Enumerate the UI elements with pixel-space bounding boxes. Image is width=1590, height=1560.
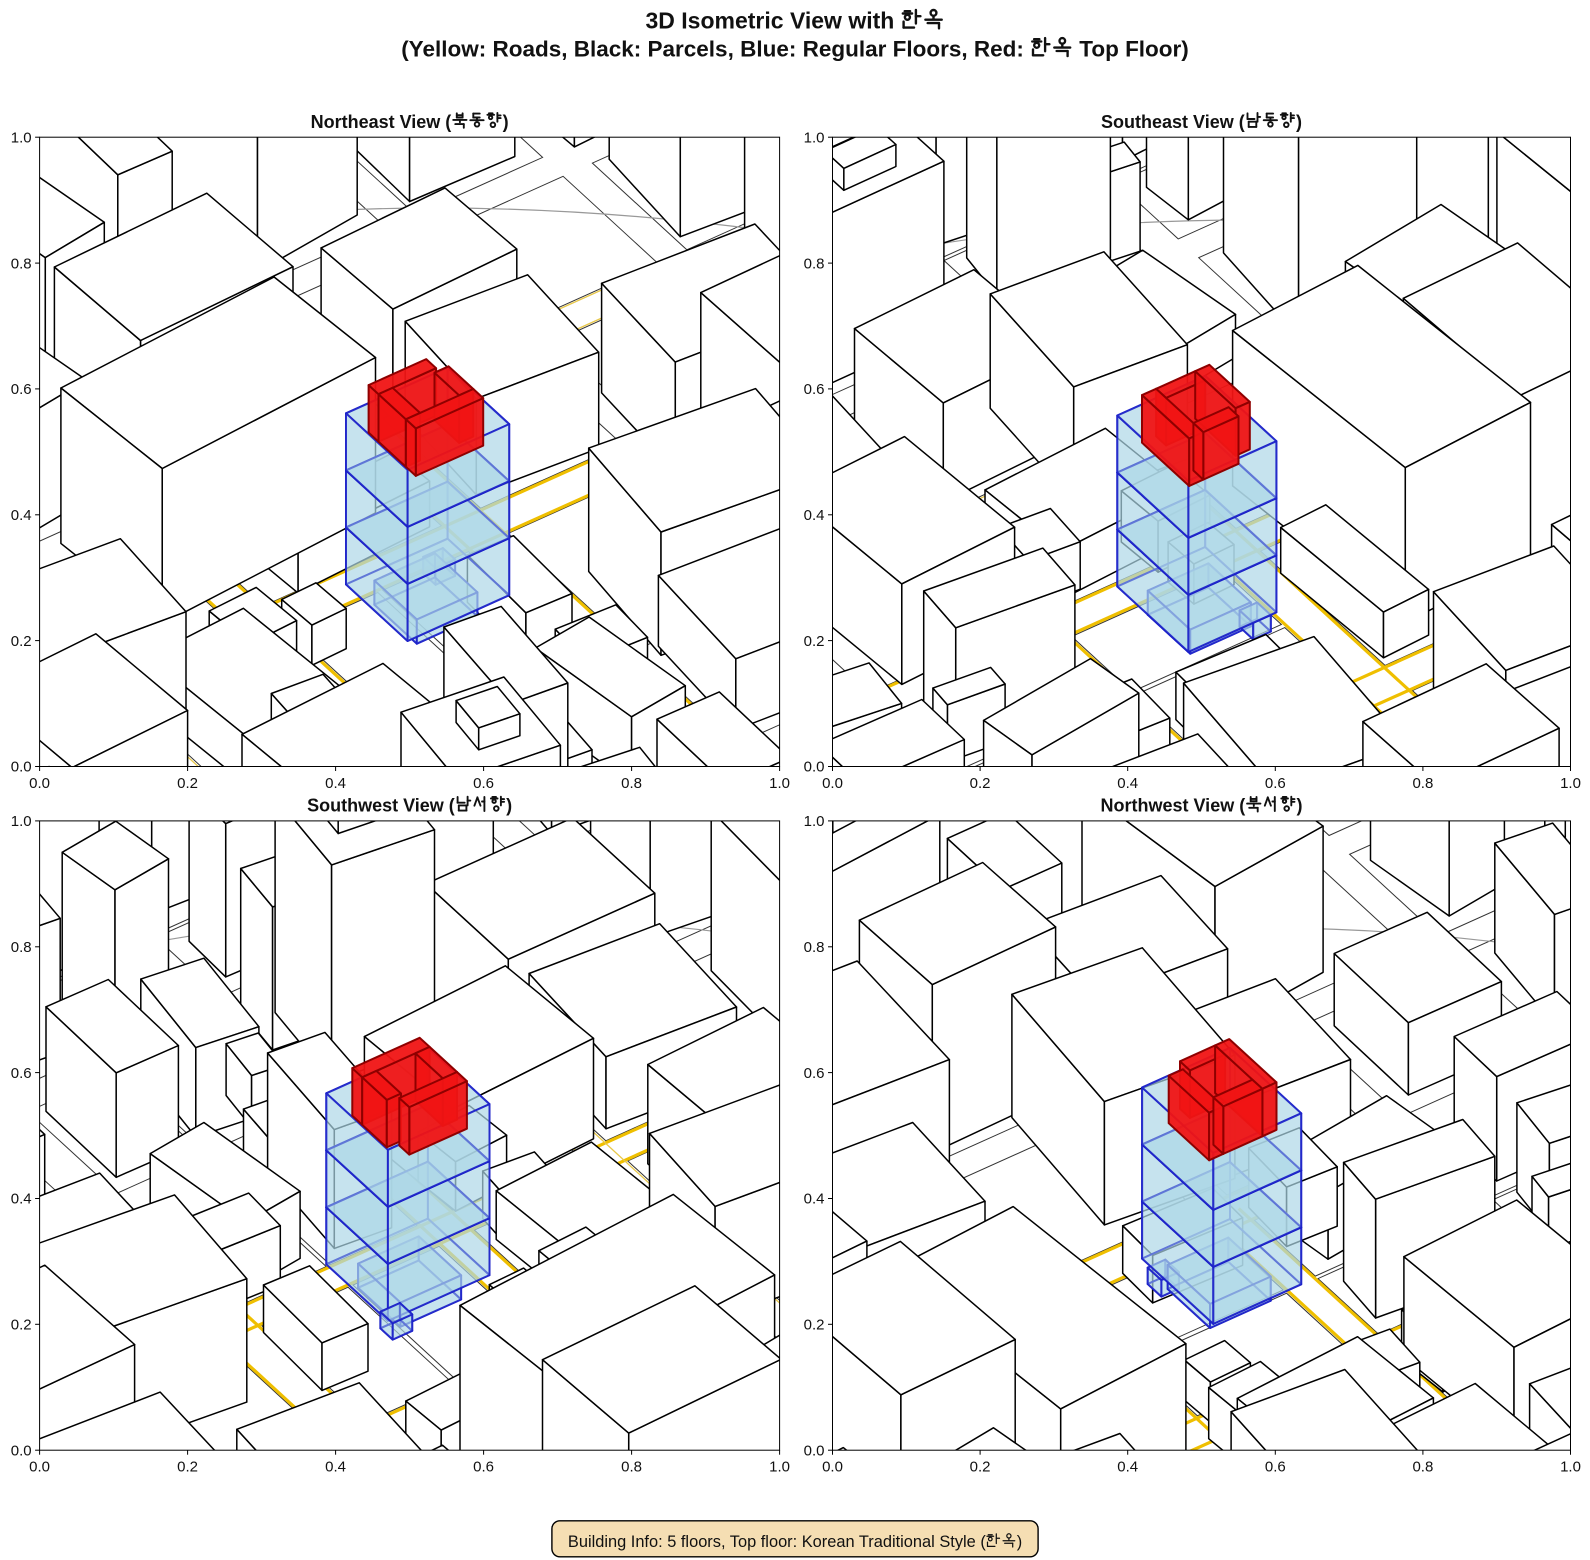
svg-text:0.2: 0.2	[970, 1459, 991, 1476]
svg-text:0.4: 0.4	[325, 775, 346, 792]
svg-text:): )	[1297, 796, 1303, 816]
svg-text:0.4: 0.4	[11, 507, 32, 524]
svg-text:Northwest View (: Northwest View (	[1101, 796, 1246, 816]
svg-text:0.6: 0.6	[11, 1065, 32, 1082]
svg-text:0.4: 0.4	[804, 507, 825, 524]
svg-text:3D Isometric View with: 3D Isometric View with	[646, 8, 901, 34]
svg-text:0.6: 0.6	[473, 1459, 494, 1476]
svg-text:1.0: 1.0	[1560, 775, 1581, 792]
svg-text:1.0: 1.0	[804, 129, 825, 146]
svg-text:0.2: 0.2	[804, 1317, 825, 1334]
svg-text:0.8: 0.8	[1412, 1459, 1433, 1476]
svg-text:Top Floor): Top Floor)	[1073, 36, 1189, 61]
svg-text:0.8: 0.8	[11, 939, 32, 956]
svg-text:0.6: 0.6	[11, 381, 32, 398]
svg-text:0.8: 0.8	[804, 255, 825, 272]
svg-text:0.8: 0.8	[1412, 775, 1433, 792]
svg-text:0.2: 0.2	[177, 775, 198, 792]
svg-text:0.8: 0.8	[621, 1459, 642, 1476]
svg-text:0.6: 0.6	[473, 775, 494, 792]
svg-text:0.4: 0.4	[804, 1191, 825, 1208]
svg-text:0.4: 0.4	[1117, 1459, 1138, 1476]
svg-text:0.0: 0.0	[822, 1459, 843, 1476]
svg-text:): )	[1296, 112, 1302, 132]
svg-text:0.0: 0.0	[29, 775, 50, 792]
svg-text:0.6: 0.6	[1265, 1459, 1286, 1476]
svg-text:Building Info: 5 floors, Top f: Building Info: 5 floors, Top floor: Kore…	[568, 1533, 986, 1551]
svg-text:0.0: 0.0	[29, 1459, 50, 1476]
svg-text:0.2: 0.2	[970, 775, 991, 792]
svg-text:0.0: 0.0	[11, 759, 32, 776]
svg-text:0.8: 0.8	[11, 255, 32, 272]
svg-text:0.6: 0.6	[804, 381, 825, 398]
svg-text:1.0: 1.0	[11, 813, 32, 830]
svg-text:0.4: 0.4	[1117, 775, 1138, 792]
svg-text:Southwest View (: Southwest View (	[307, 796, 455, 816]
svg-text:0.2: 0.2	[177, 1459, 198, 1476]
svg-text:): )	[506, 796, 512, 816]
svg-text:0.0: 0.0	[804, 1442, 825, 1459]
svg-text:1.0: 1.0	[11, 129, 32, 146]
svg-text:Southeast View (: Southeast View (	[1101, 112, 1245, 132]
svg-text:0.0: 0.0	[11, 1442, 32, 1459]
svg-text:1.0: 1.0	[769, 775, 790, 792]
svg-text:0.6: 0.6	[804, 1065, 825, 1082]
svg-text:): )	[503, 112, 509, 132]
svg-text:): )	[1017, 1533, 1022, 1551]
svg-text:0.2: 0.2	[11, 633, 32, 650]
svg-text:(Yellow: Roads, Black: Parcels: (Yellow: Roads, Black: Parcels, Blue: Re…	[401, 36, 1030, 61]
svg-text:1.0: 1.0	[1560, 1459, 1581, 1476]
svg-text:0.2: 0.2	[11, 1317, 32, 1334]
svg-text:0.2: 0.2	[804, 633, 825, 650]
svg-text:1.0: 1.0	[769, 1459, 790, 1476]
svg-text:Northeast View (: Northeast View (	[311, 112, 452, 132]
svg-text:0.4: 0.4	[325, 1459, 346, 1476]
svg-text:0.8: 0.8	[621, 775, 642, 792]
svg-text:0.0: 0.0	[804, 759, 825, 776]
svg-text:0.8: 0.8	[804, 939, 825, 956]
svg-text:0.6: 0.6	[1265, 775, 1286, 792]
svg-text:1.0: 1.0	[804, 813, 825, 830]
svg-text:0.4: 0.4	[11, 1191, 32, 1208]
svg-text:0.0: 0.0	[822, 775, 843, 792]
